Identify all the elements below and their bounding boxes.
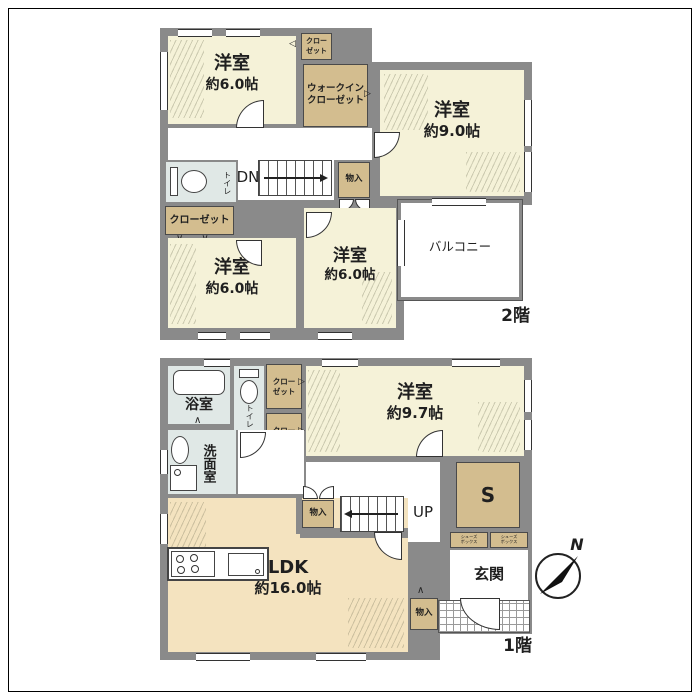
floor-1-label: 1階 xyxy=(488,636,532,656)
room-name: LDK xyxy=(268,556,308,579)
window xyxy=(322,359,358,367)
folding-door-mark: ∧ xyxy=(194,416,201,426)
compass-north-label: N xyxy=(566,536,588,554)
bedroom-sw-label: 洋室 約6.0帖 xyxy=(168,254,296,300)
wic-label-line: ウォークイン xyxy=(307,83,364,95)
storage-2f-label: 物入 xyxy=(338,162,370,198)
floor-2-label: 2階 xyxy=(472,306,530,326)
washing-machine-icon xyxy=(170,465,197,491)
window xyxy=(160,514,168,544)
window xyxy=(397,220,405,266)
window xyxy=(524,100,532,146)
storage-s-label: S xyxy=(456,462,520,528)
room-size: 約16.0帖 xyxy=(254,579,321,599)
window xyxy=(160,450,168,474)
room-name: 洋室 xyxy=(397,381,433,404)
shoes-box-b-label: シューズ ボックス xyxy=(496,534,523,545)
window xyxy=(204,359,230,367)
window xyxy=(316,653,366,661)
burner-icon xyxy=(177,566,185,574)
room-size: 約9.7帖 xyxy=(387,404,444,424)
toilet-2f-label: トイレ xyxy=(220,165,233,201)
storage-entry-1f-label: 物入 xyxy=(410,598,438,630)
window xyxy=(524,152,532,192)
folding-door-mark: ∧ xyxy=(417,586,424,596)
door-swing-arrow: ◁ xyxy=(289,40,296,49)
shoes-box-label-line: ボックス xyxy=(501,540,518,545)
room-name: 洋室 xyxy=(214,52,250,75)
window xyxy=(524,420,532,450)
door-swing-arrow: ▷ xyxy=(364,90,371,99)
entrance-label: 玄関 xyxy=(450,566,528,584)
bathroom-label: 浴室 xyxy=(168,396,230,414)
shoes-box-label-line: ボックス xyxy=(461,540,478,545)
hallway-2f xyxy=(168,128,372,160)
window xyxy=(178,29,212,37)
window xyxy=(432,198,486,206)
room-size: 約6.0帖 xyxy=(206,280,259,298)
stairs-direction-arrow xyxy=(264,177,320,179)
bathtub-icon xyxy=(173,370,225,395)
toilet-tank-icon xyxy=(239,369,259,378)
stairs-dn-label: DN xyxy=(234,169,262,187)
toilet-tank-icon xyxy=(170,167,178,196)
burner-icon xyxy=(176,555,184,563)
shoes-box-a-label: シューズ ボックス xyxy=(456,534,483,545)
room-size: 約6.0帖 xyxy=(325,267,376,285)
window xyxy=(524,380,532,412)
storage-hall-1f-label: 物入 xyxy=(302,500,334,528)
stairs-arrowhead xyxy=(344,510,352,518)
closet-top-label: クロー ゼット xyxy=(301,34,332,59)
window xyxy=(240,332,270,340)
room-size: 約6.0帖 xyxy=(206,76,259,94)
door-swing-arrow: ▷ xyxy=(298,378,305,387)
washing-machine-dial xyxy=(174,469,181,476)
stairs-arrowhead xyxy=(320,174,328,182)
toilet-1f-label: トイレ xyxy=(242,402,256,429)
closet-label-line: クロー xyxy=(306,37,327,46)
washbasin-icon xyxy=(171,436,189,464)
closet-label-line: クロー xyxy=(273,377,296,387)
room-size: 約9.0帖 xyxy=(424,122,481,142)
stairs-up-label: UP xyxy=(408,504,438,522)
window xyxy=(452,359,500,367)
closet-a-1f-label: クロー ゼット xyxy=(266,366,302,407)
closet-label-line: ゼット xyxy=(306,47,327,56)
toilet-icon xyxy=(240,380,258,404)
washroom-label: 洗面室 xyxy=(198,434,216,492)
floorplan-page: バルコニー 洋室 約6.0帖 クロー ゼット ◁ ウォークイン クローゼット ▷… xyxy=(0,0,700,700)
compass-icon xyxy=(532,548,586,602)
sink-drain xyxy=(255,569,260,574)
stairs-direction-arrow xyxy=(350,513,398,515)
room-name: 洋室 xyxy=(434,99,470,122)
bedroom-1f-label: 洋室 約9.7帖 xyxy=(306,378,524,426)
wic-label-line: クローゼット xyxy=(307,95,364,107)
walkin-closet-label: ウォークイン クローゼット xyxy=(303,80,368,110)
window xyxy=(196,653,250,661)
bedroom-e-label: 洋室 約9.0帖 xyxy=(380,96,524,144)
burner-icon xyxy=(190,554,198,562)
room-name: 洋室 xyxy=(333,245,367,267)
window xyxy=(226,29,260,37)
balcony-label: バルコニー xyxy=(398,238,522,256)
toilet-icon xyxy=(181,170,207,193)
window xyxy=(318,332,352,340)
closet-label-line: ゼット xyxy=(273,387,296,397)
burner-icon xyxy=(191,565,199,573)
window xyxy=(160,52,168,110)
closet-left-2f-label: クローゼット xyxy=(165,206,234,235)
bedroom-s-label: 洋室 約6.0帖 xyxy=(304,242,396,288)
bedroom-nw-label: 洋室 約6.0帖 xyxy=(168,50,296,96)
window xyxy=(198,332,226,340)
